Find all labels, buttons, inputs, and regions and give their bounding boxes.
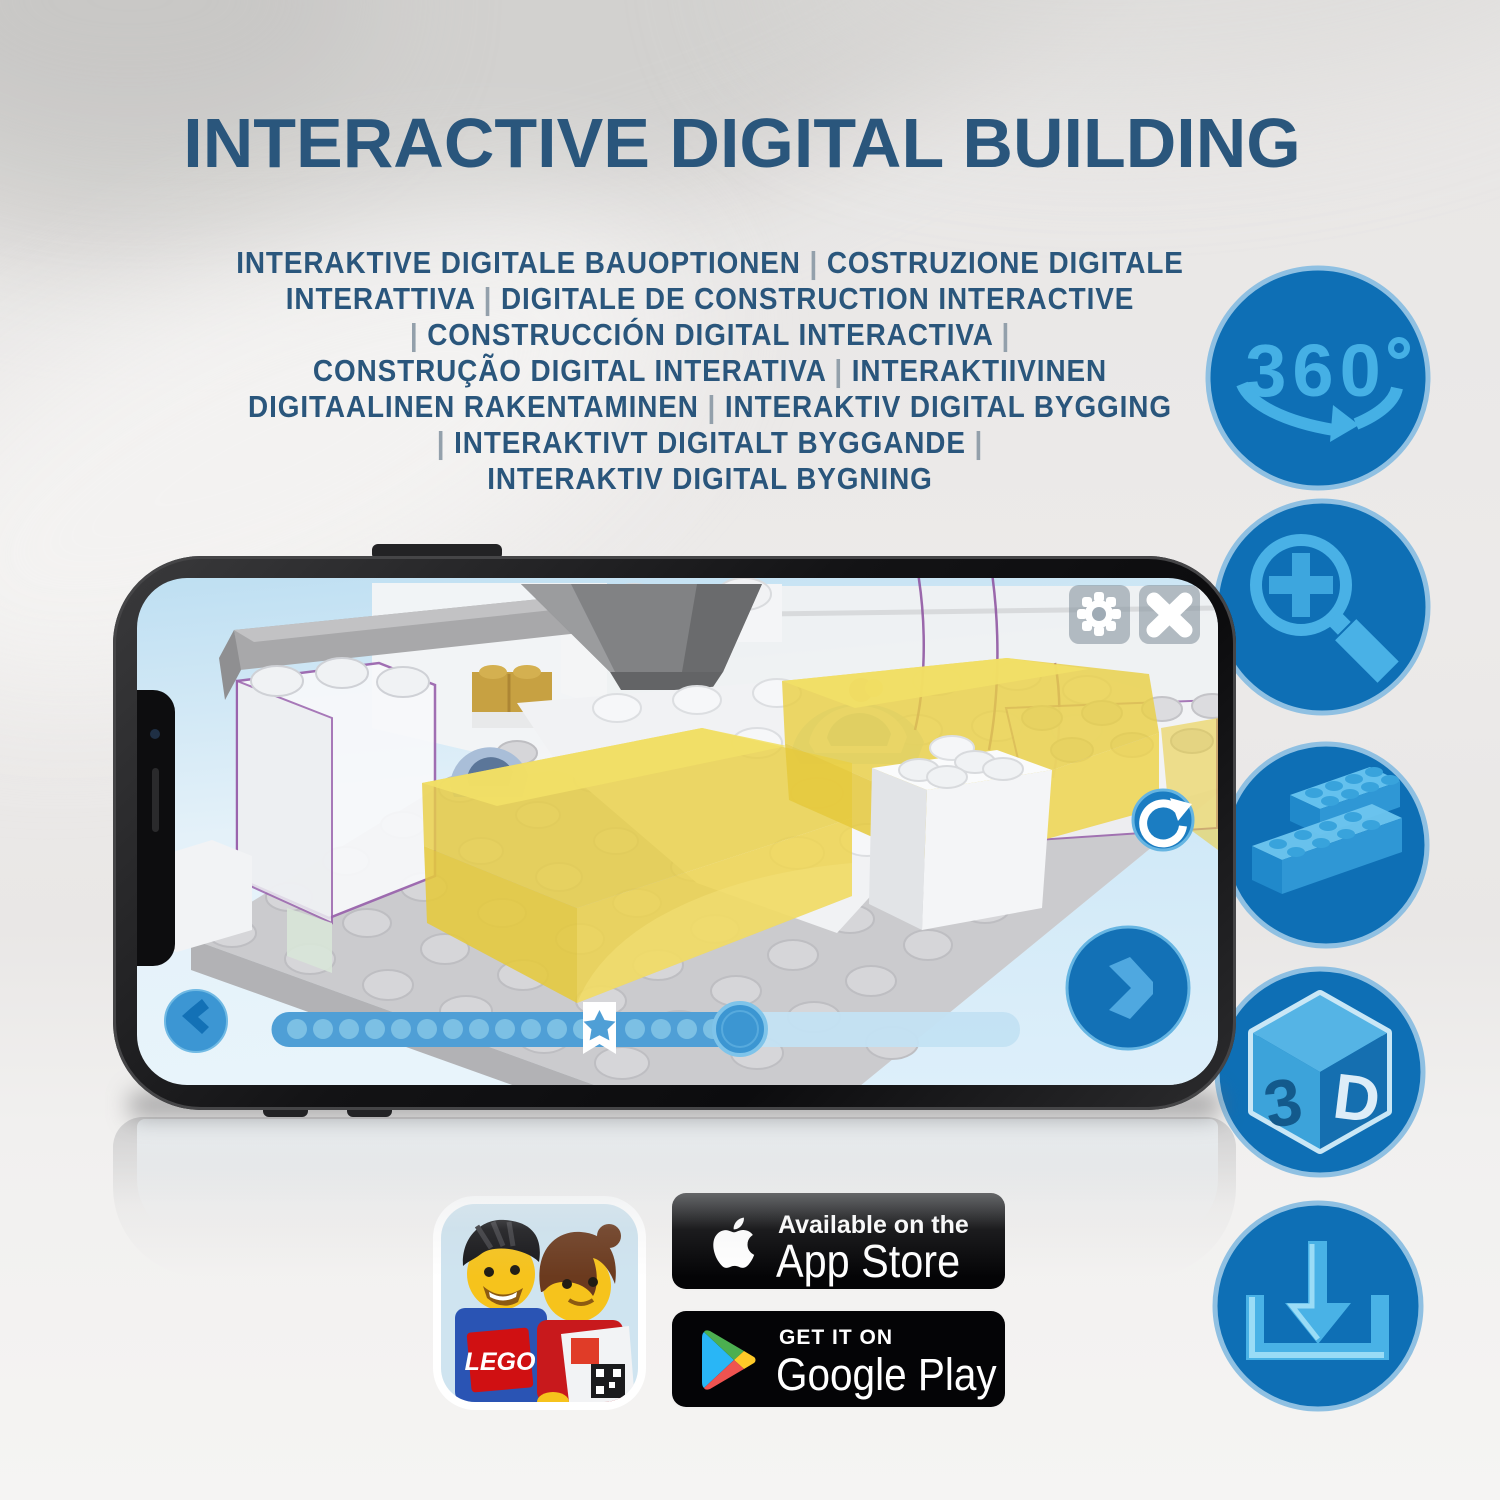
- svg-text:LEGO: LEGO: [465, 1348, 536, 1376]
- svg-text:D: D: [1329, 1060, 1384, 1137]
- svg-text:360: 360: [1245, 329, 1386, 412]
